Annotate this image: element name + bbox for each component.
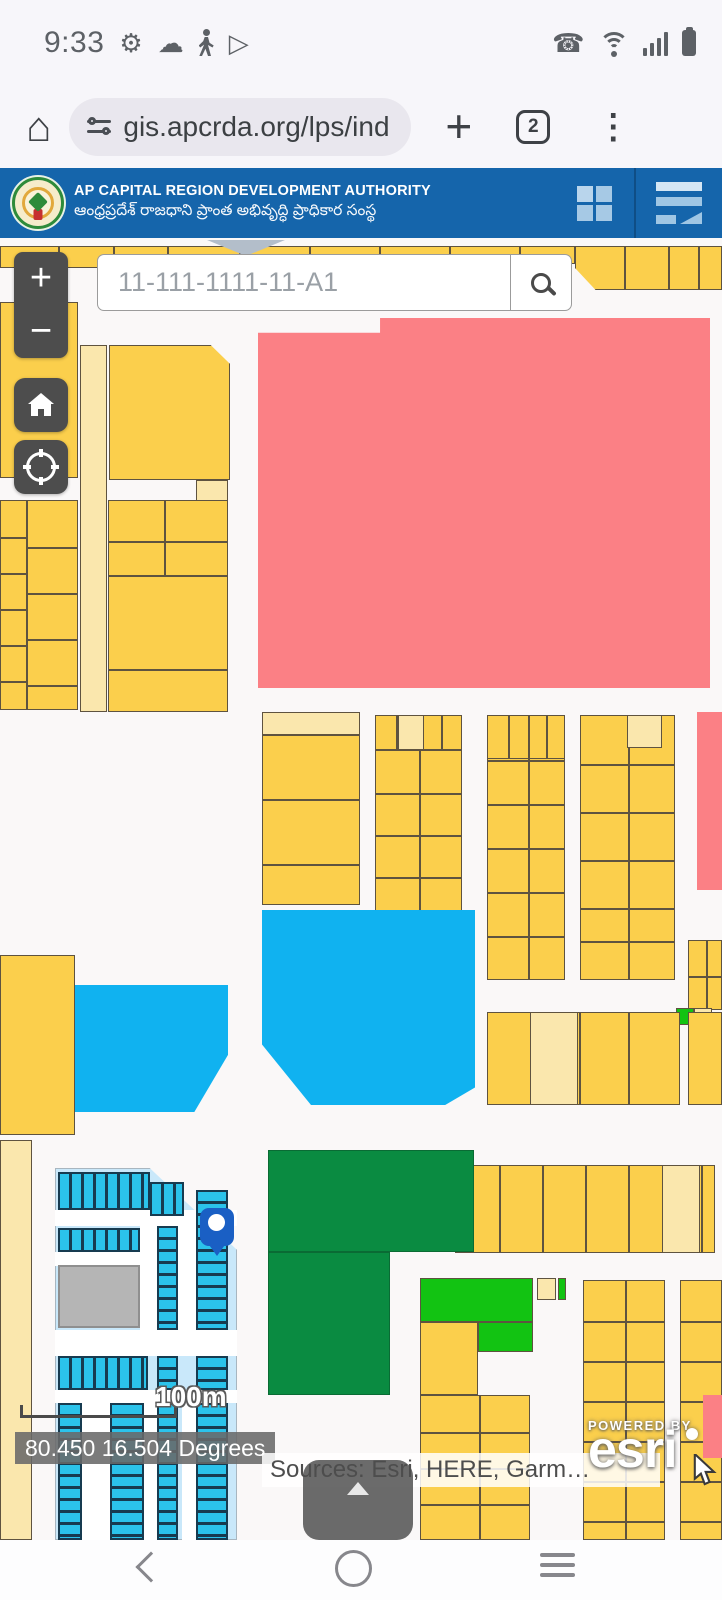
walking-person-icon [199, 29, 214, 56]
map-parcel [0, 1140, 32, 1540]
map-parcel [110, 1403, 144, 1540]
battery-icon [682, 30, 696, 56]
map-parcel [420, 1322, 478, 1395]
map-parcel [182, 1403, 196, 1540]
wifi-icon [599, 32, 629, 56]
map-parcel [157, 1403, 178, 1540]
search-button[interactable] [511, 255, 571, 310]
map-home-button[interactable] [14, 378, 68, 432]
browser-menu-button[interactable]: ⋮ [596, 107, 630, 147]
map-parcel [58, 1172, 150, 1210]
map-parcel [196, 1403, 228, 1540]
map-parcel [703, 1395, 722, 1458]
site-settings-icon[interactable] [87, 116, 111, 138]
map-parcel [0, 955, 75, 1135]
parcel-search-box [97, 254, 572, 311]
android-nav-bar [0, 1540, 722, 1600]
zoom-in-button[interactable]: + [14, 252, 68, 305]
app-subtitle-telugu: ఆంధ్రప్రదేశ్ రాజధాని ప్రాంత అభివృద్ధి ప్… [74, 202, 431, 223]
scale-bar [20, 1405, 177, 1418]
map-parcel [178, 1226, 196, 1330]
map-parcel [262, 712, 360, 735]
coordinates-readout: 80.450 16.504 Degrees [15, 1432, 275, 1464]
esri-logo: esri [588, 1420, 677, 1480]
layers-menu-icon[interactable] [656, 182, 702, 224]
search-icon [531, 273, 551, 293]
cloud-icon: ☁ [158, 30, 184, 56]
new-tab-button[interactable]: + [445, 108, 472, 145]
clock: 9:33 [44, 26, 104, 60]
apps-grid-icon[interactable] [577, 186, 612, 221]
map-parcel [487, 1012, 680, 1105]
wifi-calling-icon: ☎ [552, 30, 584, 56]
scale-label: 100m [155, 1381, 227, 1413]
map-parcel [398, 715, 424, 750]
map-parcel [150, 1182, 184, 1216]
map-parcel [558, 1278, 566, 1300]
play-store-icon: ▷ [229, 30, 249, 56]
map-parcel [108, 576, 228, 712]
map-parcel [420, 1278, 533, 1322]
map-parcel [80, 345, 107, 712]
map-parcel [662, 1165, 700, 1253]
map-parcel [58, 1228, 140, 1252]
url-text[interactable]: gis.apcrda.org/lps/ind [123, 111, 389, 143]
esri-logo-dot [686, 1428, 698, 1440]
map-parcel [58, 1356, 148, 1390]
map-parcel [688, 940, 722, 1010]
map-parcel [688, 1012, 722, 1105]
locate-me-button[interactable] [14, 440, 68, 494]
app-title: AP CAPITAL REGION DEVELOPMENT AUTHORITY [74, 183, 431, 199]
browser-home-button[interactable]: ⌂ [26, 106, 51, 148]
map-parcel [627, 715, 662, 748]
map-parcel [109, 345, 230, 480]
home-icon [28, 393, 54, 417]
tab-switcher-button[interactable]: 2 [516, 110, 550, 144]
url-bar[interactable]: gis.apcrda.org/lps/ind [69, 98, 411, 156]
map-parcel [530, 1012, 578, 1105]
map-parcel [375, 750, 462, 920]
map-parcel [157, 1226, 178, 1330]
location-pin[interactable] [200, 1208, 234, 1260]
map-parcel [0, 500, 27, 710]
nav-back-button[interactable] [135, 1551, 166, 1582]
zoom-out-button[interactable]: − [14, 305, 68, 358]
map-parcel [58, 1403, 82, 1540]
map-parcel [262, 735, 360, 905]
map-parcel [575, 246, 722, 290]
map-parcel [55, 1330, 237, 1356]
cursor-icon [692, 1454, 720, 1486]
map-parcel [140, 1226, 157, 1330]
search-input[interactable] [98, 255, 510, 310]
settings-gear-icon: ⚙ [119, 30, 142, 56]
map-parcel [108, 500, 228, 576]
apcrda-logo [12, 177, 64, 229]
map-parcel [55, 1252, 140, 1266]
nav-home-button[interactable] [335, 1550, 372, 1587]
browser-toolbar: ⌂ gis.apcrda.org/lps/ind + 2 ⋮ [0, 85, 722, 168]
map-parcel [262, 910, 475, 1105]
map-parcel [478, 1322, 533, 1352]
map-parcel [75, 985, 228, 1112]
map-parcel [268, 1252, 390, 1395]
map-parcel [580, 715, 675, 980]
attribution-text: Sources: Esri, HERE, Garm… [270, 1456, 590, 1484]
zoom-control: + − [14, 252, 68, 358]
map-parcel [258, 318, 710, 688]
map-parcel [697, 712, 722, 890]
nav-menu-button[interactable] [540, 1553, 575, 1577]
phone-screen: 9:33 ⚙ ☁ ▷ ☎ ⌂ gis.apcrda.org/lps/ind + … [0, 0, 722, 1600]
map-parcel [58, 1265, 140, 1328]
crosshair-icon [26, 452, 56, 482]
map-parcel [487, 715, 565, 759]
status-bar: 9:33 ⚙ ☁ ▷ ☎ [0, 0, 722, 85]
map-parcel [268, 1150, 474, 1252]
app-header: AP CAPITAL REGION DEVELOPMENT AUTHORITY … [0, 168, 722, 238]
map-canvas[interactable]: + − 100m 80.450 16.504 Degrees Sources: … [0, 238, 722, 1540]
signal-strength-icon [643, 31, 669, 56]
header-divider [634, 168, 636, 238]
map-parcel [82, 1403, 110, 1540]
map-parcel [27, 500, 78, 710]
map-parcel [144, 1403, 158, 1540]
map-parcel [583, 1280, 665, 1540]
map-parcel [537, 1278, 556, 1300]
